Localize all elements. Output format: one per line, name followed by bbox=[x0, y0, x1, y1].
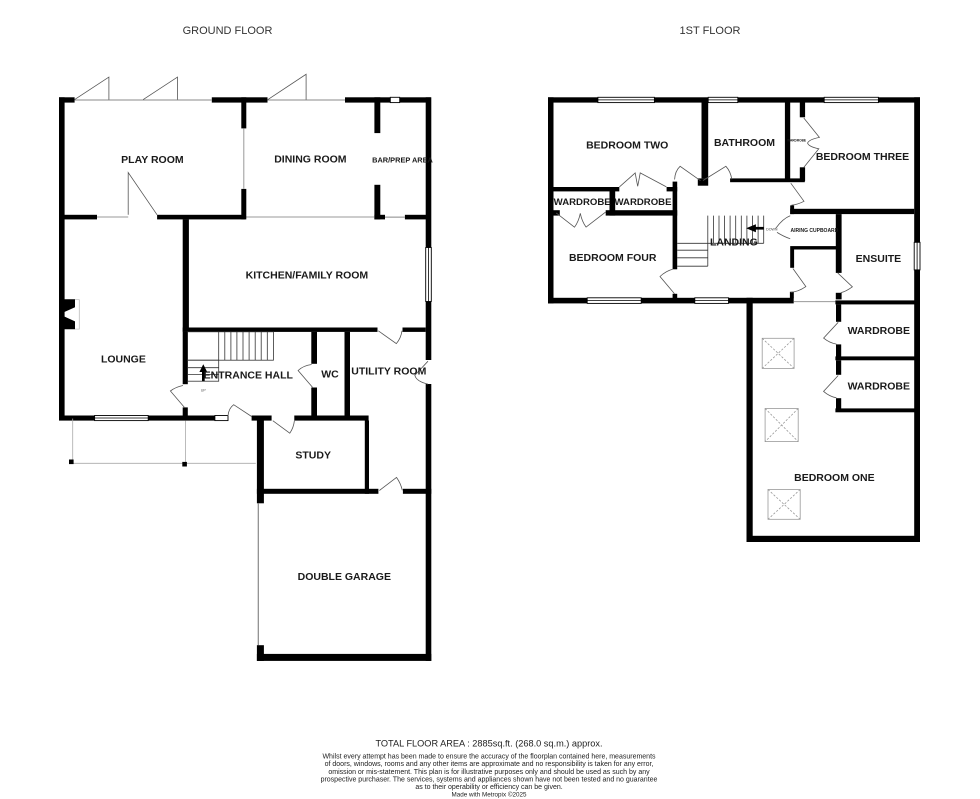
svg-text:Whilst every attempt has been: Whilst every attempt has been made to en… bbox=[322, 753, 656, 760]
svg-text:DOWN: DOWN bbox=[766, 228, 778, 232]
svg-text:WARDROBE: WARDROBE bbox=[614, 197, 672, 208]
svg-text:WARDROBE: WARDROBE bbox=[787, 139, 806, 143]
svg-text:KITCHEN/FAMILY ROOM: KITCHEN/FAMILY ROOM bbox=[246, 269, 369, 281]
svg-text:BEDROOM THREE: BEDROOM THREE bbox=[816, 151, 909, 163]
svg-text:LOUNGE: LOUNGE bbox=[101, 353, 146, 365]
svg-text:UP: UP bbox=[201, 389, 207, 393]
svg-text:UTILITY ROOM: UTILITY ROOM bbox=[351, 365, 426, 377]
svg-text:1ST FLOOR: 1ST FLOOR bbox=[680, 25, 741, 37]
svg-text:BEDROOM ONE: BEDROOM ONE bbox=[794, 472, 875, 484]
svg-text:DINING ROOM: DINING ROOM bbox=[274, 153, 347, 165]
svg-text:prospective purchaser. The ser: prospective purchaser. The services, sys… bbox=[321, 777, 658, 784]
svg-text:as to their operability or eff: as to their operability or efficiency ca… bbox=[415, 784, 562, 791]
svg-text:ENTRANCE HALL: ENTRANCE HALL bbox=[204, 370, 294, 382]
svg-text:TOTAL FLOOR AREA : 2885sq.ft.: TOTAL FLOOR AREA : 2885sq.ft. (268.0 sq.… bbox=[375, 739, 602, 749]
svg-text:GROUND FLOOR: GROUND FLOOR bbox=[183, 25, 273, 37]
svg-text:BEDROOM TWO: BEDROOM TWO bbox=[586, 140, 668, 152]
svg-text:of doors, windows, rooms and a: of doors, windows, rooms and any other i… bbox=[325, 761, 654, 768]
svg-text:WARDROBE: WARDROBE bbox=[848, 325, 910, 337]
svg-text:omission or mis-statement. Thi: omission or mis-statement. This plan is … bbox=[328, 769, 650, 776]
svg-text:BEDROOM FOUR: BEDROOM FOUR bbox=[569, 252, 657, 264]
svg-text:STUDY: STUDY bbox=[295, 450, 331, 462]
svg-text:LANDING: LANDING bbox=[710, 236, 758, 248]
svg-text:ENSUITE: ENSUITE bbox=[856, 253, 902, 265]
svg-text:DOUBLE GARAGE: DOUBLE GARAGE bbox=[298, 571, 391, 583]
svg-text:WARDROBE: WARDROBE bbox=[848, 380, 910, 392]
svg-text:BATHROOM: BATHROOM bbox=[714, 137, 775, 149]
svg-text:PLAY ROOM: PLAY ROOM bbox=[121, 154, 184, 166]
svg-text:WC: WC bbox=[321, 368, 339, 380]
svg-text:Made with Metropix ©2025: Made with Metropix ©2025 bbox=[452, 791, 527, 799]
svg-text:AIRING CUPBOARD: AIRING CUPBOARD bbox=[791, 228, 839, 234]
svg-text:BAR/PREP AREA: BAR/PREP AREA bbox=[372, 155, 433, 164]
svg-text:WARDROBE: WARDROBE bbox=[554, 197, 612, 208]
